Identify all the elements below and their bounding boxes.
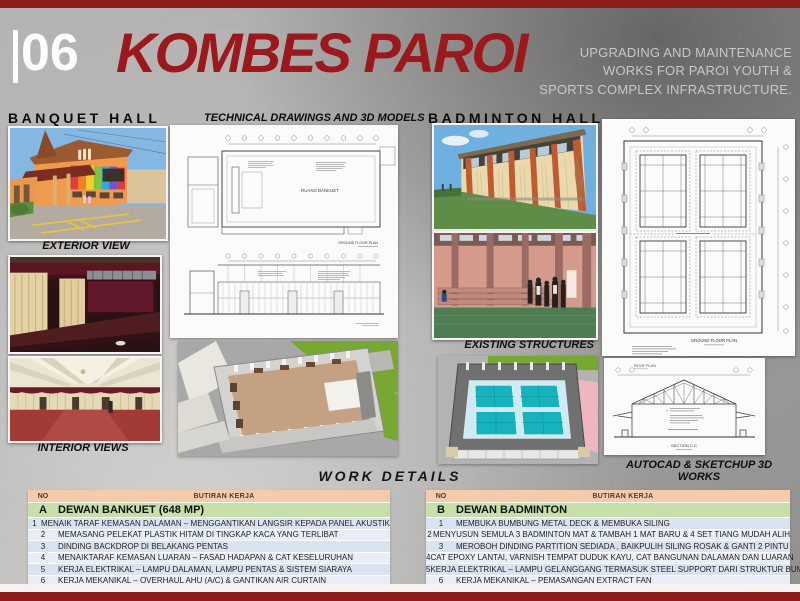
subtitle-line-1: UPGRADING AND MAINTENANCE [470, 44, 792, 62]
banquet-hall-heading: BANQUET HALL [8, 110, 160, 126]
banquet-technical-drawing: RUANG BANKUET GROUND FLOOR PLAN [170, 125, 398, 338]
exterior-view-caption: EXTERIOR VIEW [8, 240, 164, 252]
header-subtitle: UPGRADING AND MAINTENANCE WORKS FOR PARO… [470, 44, 792, 99]
banquet-ground-floor-plan-label: GROUND FLOOR PLAN [338, 241, 378, 245]
subtitle-line-3: SPORTS COMPLEX INFRASTRUCTURE. [470, 81, 792, 99]
table-row: 1MENAIK TARAF KEMASAN DALAMAN – MENGGANT… [28, 517, 390, 529]
badminton-exterior-photo [432, 123, 598, 231]
table-row: 3MEROBOH DINDING PARTITION SEDIADA , BAI… [426, 540, 790, 552]
table-b-section-row: B DEWAN BADMINTON [426, 502, 790, 517]
top-red-bar [0, 0, 800, 8]
table-b-butiran-header: BUTIRAN KERJA [456, 493, 790, 500]
work-details-heading: WORK DETAILS [300, 468, 480, 484]
banquet-hall-interior-photo [8, 356, 162, 443]
table-b-header-row: NO BUTIRAN KERJA [426, 490, 790, 502]
table-row: 3DINDING BACKDROP DI BELAKANG PENTAS [28, 540, 390, 552]
subtitle-line-2: WORKS FOR PAROI YOUTH & [470, 62, 792, 80]
bottom-white-strip [0, 584, 800, 592]
banquet-stage-photo [8, 255, 162, 354]
banquet-work-table: NO BUTIRAN KERJA A DEWAN BANKUET (648 MP… [28, 490, 390, 598]
existing-structures-caption: EXISTING STRUCTURES [432, 339, 594, 351]
table-row: 5KERJA ELEKTRIKAL – LAMPU GELANGGANG TER… [426, 563, 790, 575]
table-a-section-title: DEWAN BANKUET (648 MP) [58, 504, 390, 516]
table-b-section-id: B [426, 504, 456, 516]
badminton-ground-floor-plan-label: GROUND FLOOR PLAN [691, 338, 737, 343]
ruang-bankuet-label: RUANG BANKUET [301, 188, 339, 193]
table-a-header-row: NO BUTIRAN KERJA [28, 490, 390, 502]
table-b-section-title: DEWAN BADMINTON [456, 504, 790, 516]
autocad-sketchup-caption: AUTOCAD & SKETCHUP 3D WORKS [604, 459, 794, 483]
table-row: 1MEMBUKA BUMBUNG METAL DECK & MEMBUKA SI… [426, 517, 790, 529]
banquet-3d-model [178, 341, 398, 456]
bottom-red-bar [0, 592, 800, 601]
badminton-interior-photo [432, 231, 598, 340]
table-row: 5KERJA ELEKTRIKAL – LAMPU DALAMAN, LAMPU… [28, 563, 390, 575]
table-row: 4MENAIKTARAF KEMASAN LUARAN – FASAD HADA… [28, 552, 390, 564]
slide-number-pipe [13, 30, 18, 83]
table-b-no-header: NO [426, 493, 456, 500]
table-a-section-row: A DEWAN BANKUET (648 MP) [28, 502, 390, 517]
badminton-section-drawing: ROOF PLAN [604, 358, 765, 455]
table-a-butiran-header: BUTIRAN KERJA [58, 493, 390, 500]
banquet-exterior-photo [8, 126, 168, 241]
table-row: 4CAT EPOXY LANTAI, VARNISH TEMPAT DUDUK … [426, 552, 790, 564]
roof-plan-label: ROOF PLAN [634, 364, 656, 368]
badminton-3d-model [438, 356, 598, 464]
badminton-plan-drawing: GROUND FLOOR PLAN [602, 119, 795, 356]
table-row: 2MENYUSUN SEMULA 3 BADMINTON MAT & TAMBA… [426, 529, 790, 541]
interior-views-caption: INTERIOR VIEWS [8, 442, 158, 454]
slide-kombes-paroi: 06 KOMBES PAROI UPGRADING AND MAINTENANC… [0, 0, 800, 601]
slide-number: 06 [21, 27, 79, 79]
table-row: 2MEMASANG PELEKAT PLASTIK HITAM DI TINGK… [28, 529, 390, 541]
table-a-no-header: NO [28, 493, 58, 500]
badminton-work-table: NO BUTIRAN KERJA B DEWAN BADMINTON 1MEMB… [426, 490, 790, 586]
table-a-section-id: A [28, 504, 58, 516]
page-title: KOMBES PAROI [116, 25, 527, 81]
technical-drawings-heading: TECHNICAL DRAWINGS AND 3D MODELS [204, 112, 414, 124]
section-cc-label: SECTION C-C [671, 443, 697, 448]
